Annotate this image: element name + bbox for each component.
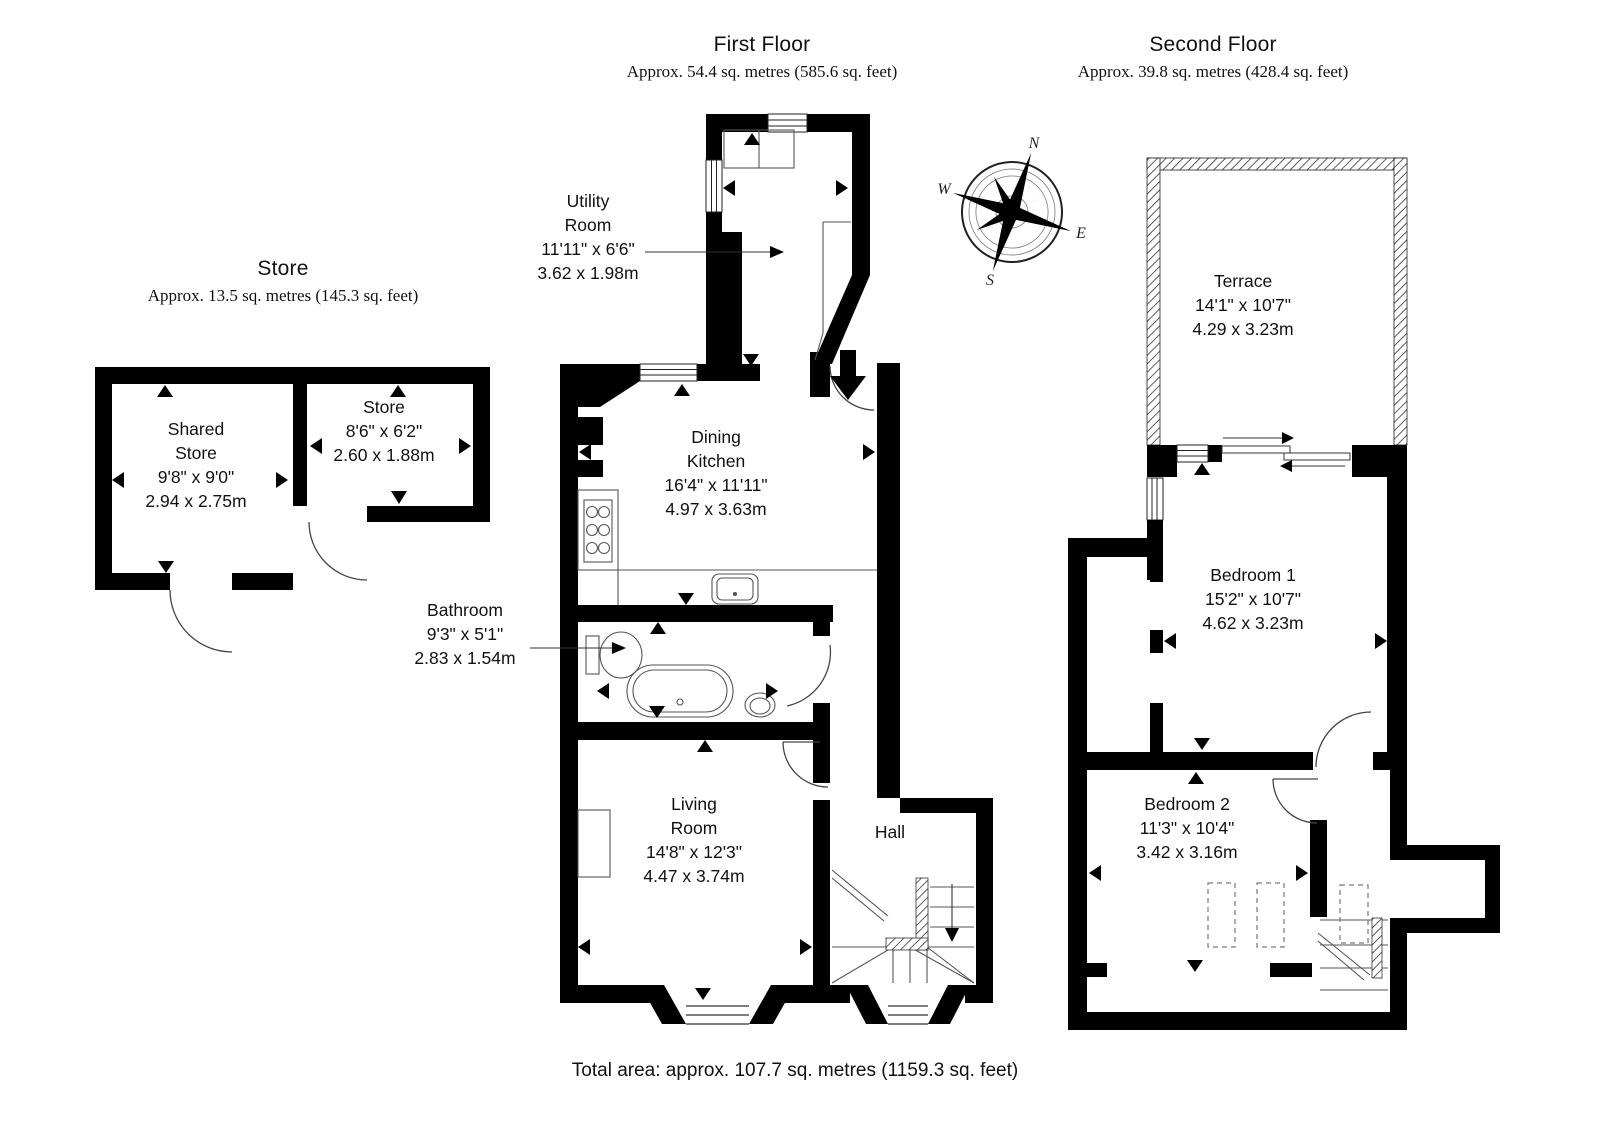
- dim-arrow-down: [695, 988, 711, 1000]
- floorplan-page: Store Approx. 13.5 sq. metres (145.3 sq.…: [0, 0, 1600, 1131]
- door-arc: [309, 522, 367, 580]
- dim-arrow-up: [650, 622, 666, 634]
- sliding-door: [1222, 432, 1350, 472]
- dim-arrow-left: [579, 444, 591, 460]
- second-floor-area: Approx. 39.8 sq. metres (428.4 sq. feet): [1078, 62, 1349, 82]
- room-label-hall: Hall: [875, 820, 905, 844]
- dim-arrow-down: [678, 593, 694, 605]
- hob-icon: [578, 490, 618, 570]
- skylight-dashed: [1208, 883, 1368, 947]
- dim-arrow-right: [863, 444, 875, 460]
- bay-window: [640, 985, 795, 1024]
- stairs: [1318, 918, 1388, 990]
- first-floor-title: First Floor: [627, 33, 898, 57]
- dim-arrow-left: [723, 180, 735, 196]
- compass-south-label: S: [986, 272, 994, 290]
- dim-arrow-left: [310, 438, 322, 454]
- dim-arrow-left: [578, 939, 590, 955]
- compass-west-label: W: [937, 181, 950, 199]
- toilet-icon: [586, 632, 642, 678]
- second-floor-title: Second Floor: [1078, 33, 1349, 57]
- second-floor-header: Second Floor Approx. 39.8 sq. metres (42…: [1078, 33, 1349, 82]
- room-label-bedroom2: Bedroom 2 11'3" x 10'4" 3.42 x 3.16m: [1136, 792, 1237, 864]
- dim-arrow-left: [1164, 633, 1176, 649]
- room-label-bathroom: Bathroom 9'3" x 5'1" 2.83 x 1.54m: [414, 598, 515, 670]
- bathtub-icon: [627, 665, 733, 717]
- store-title: Store: [148, 257, 419, 281]
- room-label-store: Store 8'6" x 6'2" 2.60 x 1.88m: [333, 395, 434, 467]
- dim-arrow-left: [112, 472, 124, 488]
- first-floor-area: Approx. 54.4 sq. metres (585.6 sq. feet): [627, 62, 898, 82]
- dim-arrow-down: [158, 561, 174, 573]
- door-arc: [1316, 712, 1371, 767]
- dim-arrow-up: [697, 740, 713, 752]
- compass-east-label: E: [1076, 225, 1086, 243]
- bay-window: [846, 985, 970, 1024]
- dim-arrow-right: [459, 438, 471, 454]
- dim-arrow-right: [836, 180, 848, 196]
- compass-rose-icon: [934, 134, 1090, 290]
- chimney-recess: [578, 810, 610, 877]
- room-label-dining-kitchen: Dining Kitchen 16'4" x 11'11" 4.97 x 3.6…: [664, 425, 767, 521]
- room-label-utility: Utility Room 11'11" x 6'6" 3.62 x 1.98m: [537, 189, 638, 285]
- total-area-text: Total area: approx. 107.7 sq. metres (11…: [572, 1060, 1018, 1082]
- dim-arrow-up: [1194, 463, 1210, 475]
- dim-arrow-right: [1375, 633, 1387, 649]
- dim-arrow-right: [1296, 865, 1308, 881]
- room-label-living-room: Living Room 14'8" x 12'3" 4.47 x 3.74m: [643, 792, 744, 888]
- store-area: Approx. 13.5 sq. metres (145.3 sq. feet): [148, 286, 419, 306]
- compass-north-label: N: [1029, 135, 1040, 153]
- dim-arrow-left: [1089, 865, 1101, 881]
- dim-arrow-up: [1188, 772, 1204, 784]
- entrance-arrow: [830, 350, 866, 400]
- floor-plan-svg: [0, 0, 1600, 1131]
- dim-arrow-left: [597, 683, 609, 699]
- sink-icon: [712, 574, 758, 604]
- dim-arrow-up: [744, 133, 760, 145]
- basin-icon: [745, 693, 775, 717]
- dim-arrow-right: [276, 472, 288, 488]
- room-label-shared-store: Shared Store 9'8" x 9'0" 2.94 x 2.75m: [145, 417, 246, 513]
- first-floor-header: First Floor Approx. 54.4 sq. metres (585…: [627, 33, 898, 82]
- dim-arrow-right: [800, 939, 812, 955]
- door-arc: [787, 645, 830, 706]
- stairs: [832, 870, 974, 983]
- dim-arrow-up: [674, 384, 690, 396]
- dim-arrow-up: [157, 385, 173, 397]
- door-arc: [1273, 779, 1317, 823]
- dim-arrow-right: [766, 683, 778, 699]
- dim-arrow-down: [1194, 738, 1210, 750]
- room-label-bedroom1: Bedroom 1 15'2" x 10'7" 4.62 x 3.23m: [1202, 563, 1303, 635]
- door-arc: [170, 590, 232, 652]
- dim-arrow-down: [391, 491, 407, 504]
- store-header: Store Approx. 13.5 sq. metres (145.3 sq.…: [148, 257, 419, 306]
- dim-arrow-down: [1187, 960, 1203, 972]
- room-label-terrace: Terrace 14'1" x 10'7" 4.29 x 3.23m: [1192, 269, 1293, 341]
